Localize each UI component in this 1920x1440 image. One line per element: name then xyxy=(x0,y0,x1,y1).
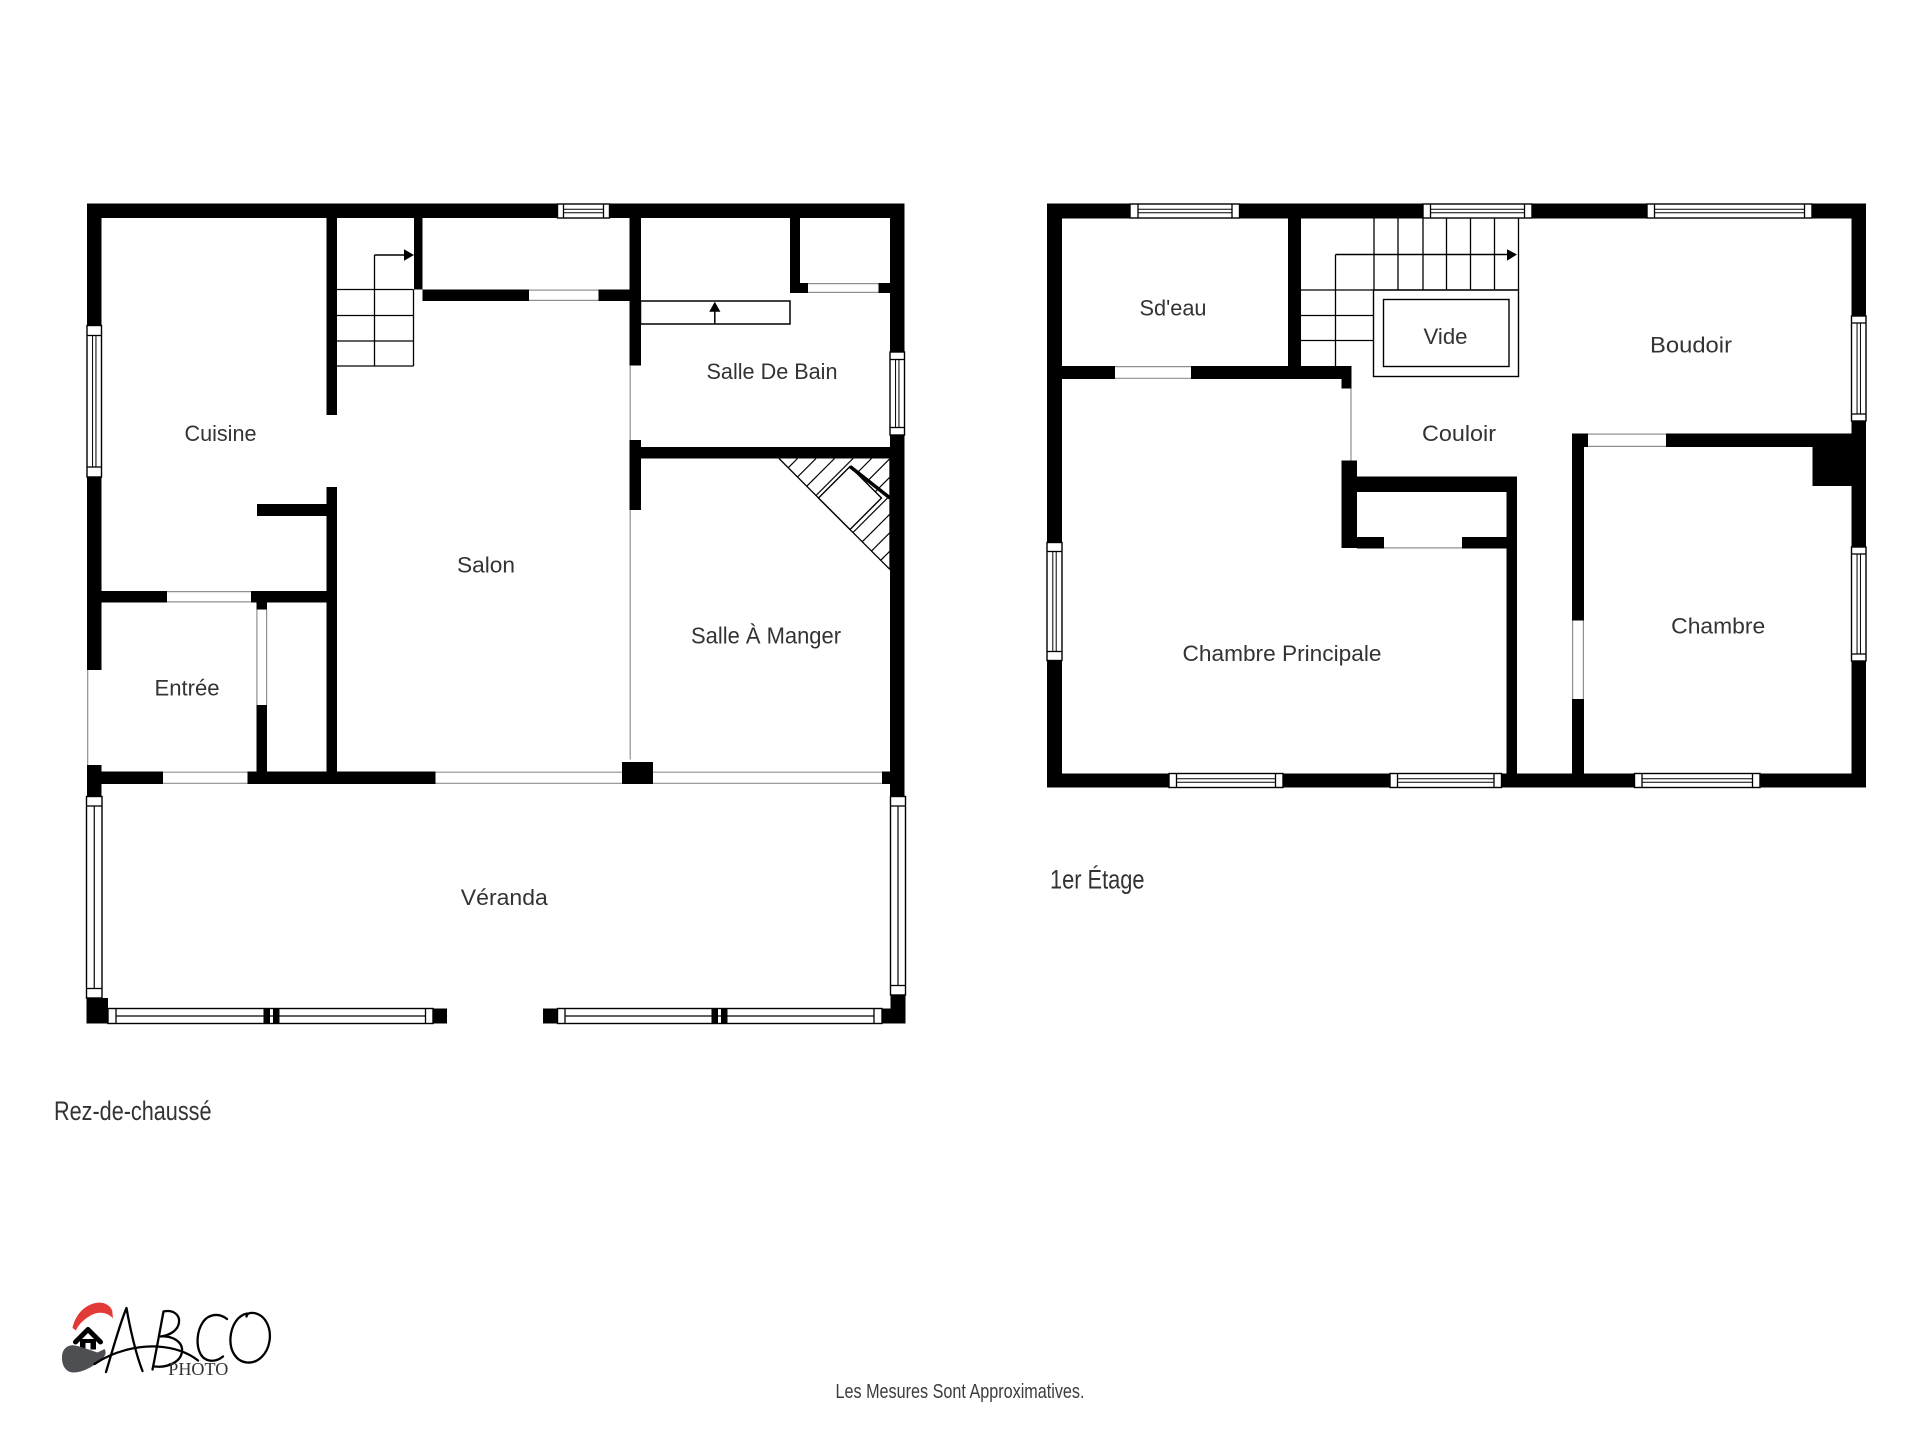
svg-text:Véranda: Véranda xyxy=(461,885,549,910)
svg-text:Les Mesures Sont Approximative: Les Mesures Sont Approximatives. xyxy=(836,1380,1085,1403)
svg-text:Salon: Salon xyxy=(457,553,515,578)
svg-text:Chambre Principale: Chambre Principale xyxy=(1183,641,1382,666)
svg-text:Entrée: Entrée xyxy=(155,676,220,701)
svg-text:Chambre: Chambre xyxy=(1671,614,1765,639)
svg-text:Rez-de-chaussé: Rez-de-chaussé xyxy=(54,1096,212,1126)
svg-text:Sd'eau: Sd'eau xyxy=(1140,296,1207,321)
svg-text:Vide: Vide xyxy=(1424,324,1468,349)
svg-text:Boudoir: Boudoir xyxy=(1650,333,1732,358)
svg-text:Salle De Bain: Salle De Bain xyxy=(707,359,838,384)
svg-text:Cuisine: Cuisine xyxy=(185,421,257,446)
svg-text:1er Étage: 1er Étage xyxy=(1050,865,1145,895)
svg-text:Salle À Manger: Salle À Manger xyxy=(691,623,841,649)
svg-text:Couloir: Couloir xyxy=(1422,421,1496,446)
svg-text:PHOTO: PHOTO xyxy=(168,1359,228,1379)
